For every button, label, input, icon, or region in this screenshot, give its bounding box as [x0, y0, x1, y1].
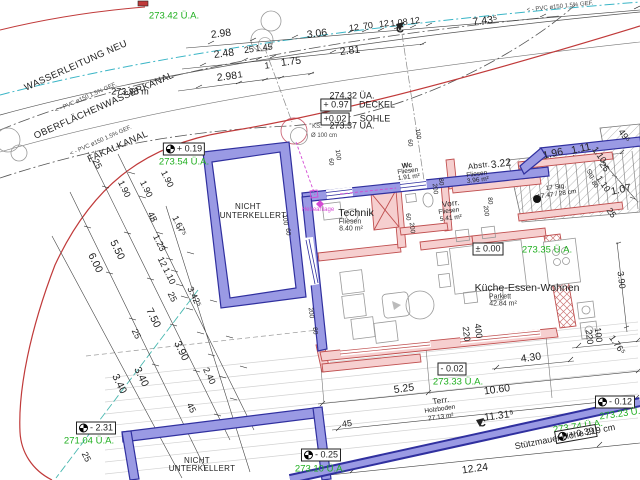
dim-1b: 1 [264, 61, 270, 71]
win-dim-80d-text: 80 [311, 327, 319, 335]
dim-190a: 1.90 [159, 169, 175, 189]
win-dim-60b: 60 [326, 158, 333, 166]
dim-25a-text: 25 [243, 44, 254, 55]
door-dim-80b-text: 80 [486, 197, 494, 205]
level-box-m231: - 2.31 [76, 422, 116, 435]
dim-1060-text: 10.60 [483, 382, 511, 398]
level-box-097-text: + 0.97 [323, 101, 348, 110]
dim-743: 7.43⁵ [472, 14, 498, 27]
win-dim-100b: 100 [333, 149, 341, 161]
level-27338-text: 273.38 m [111, 87, 149, 97]
dim-390a-text: 3.90 [171, 339, 191, 363]
room-technik-area-text: 8.40 m² [339, 226, 363, 233]
dim-100a: 100 [593, 327, 604, 343]
level-27342-text: 273.42 Ü.A. [149, 10, 199, 21]
dim-111: 1.11 [570, 142, 591, 156]
room-kueche-text: Küche-Essen-Wohnen [475, 282, 580, 294]
room-technik: Technik [338, 208, 374, 219]
level-box-m012-text: - 0.12 [609, 398, 632, 407]
dim-25e-text: 25 [80, 450, 93, 463]
stair-rise-run: 17.47 / 28 cm [537, 189, 577, 201]
stair-rise-run-text: 17.47 / 28 cm [537, 188, 577, 200]
dim-45b: 45 [185, 402, 197, 415]
dim-750: 7.50 [144, 307, 162, 330]
level-27333-text: 273.33 Ü.A. [433, 376, 483, 387]
pvc-note-3: < - PVC ø150 1.5% GEF. [526, 1, 593, 14]
ks-diameter: Ø 100 cm [311, 133, 337, 139]
room-abstr-area: 3.96 m² [467, 176, 490, 185]
dim-322: 3.22 [490, 157, 512, 170]
room-wc-area-text: 1.91 m² [398, 172, 421, 182]
dim-70: 70 [362, 21, 373, 31]
dim-298a: 2.98 [210, 28, 232, 41]
level-box-m231-text: - 2.31 [90, 424, 113, 433]
dim-390a: 3.90 [172, 340, 190, 363]
room-kueche-area-text: 42.84 m² [489, 301, 517, 308]
level-box-000-text: ± 0.00 [476, 245, 501, 254]
dim-190c-text: 1.90 [116, 179, 133, 199]
dim-340b: 3.40 [110, 373, 128, 396]
section-marker-c1: C [396, 25, 404, 36]
level-27104-text: 271.04 Ü.A. [64, 435, 114, 446]
dim-25c-text: 25 [166, 290, 179, 303]
dim-196-text: 1.96 [542, 146, 564, 162]
win-dim-100d: 100 [280, 214, 288, 226]
deckel-label-text: DECKEL [359, 100, 395, 110]
survey-marker-icon [598, 398, 607, 407]
dim-45b-text: 45 [185, 401, 198, 414]
room-technik-text: Technik [338, 207, 374, 219]
level-27310-text: 273.10 Ü.A. [295, 463, 345, 474]
dim-110a: 1.10 [161, 266, 177, 286]
dim-25d-text: 25 [130, 327, 143, 340]
level-27338: 273.38 m [111, 88, 149, 97]
door-dim-60a-text: 60 [404, 213, 412, 221]
level-box-m002: - 0.02 [437, 363, 466, 376]
room-technik-area: 8.40 m² [339, 226, 363, 233]
survey-marker-icon [79, 424, 88, 433]
door-dim-60a: 60 [403, 213, 410, 221]
dim-281-text: 2.81 [339, 44, 361, 58]
dim-107: 1.07 [610, 183, 632, 198]
dim-190a-text: 1.90 [159, 169, 176, 189]
dim-525-text: 5.25 [393, 381, 415, 396]
dim-190b: 1.90 [138, 179, 154, 199]
room-nicht-2b: UNTERKELLERT [169, 465, 236, 473]
win-dim-100d-text: 100 [281, 214, 289, 226]
hebeanlage-label-text: Hebeanlage [302, 207, 334, 213]
dim-281: 2.81 [339, 45, 361, 58]
room-technik-floor-text: Fliesen [339, 219, 362, 226]
dim-145-text: 1.45 [255, 41, 274, 53]
win-dim-200d-text: 200 [307, 307, 315, 319]
dim-298b-text: 2.98 [216, 70, 238, 84]
win-dim-100b-text: 100 [334, 149, 342, 161]
level-box-097: + 0.97 [320, 99, 351, 112]
pvc-note-3-text: < - PVC ø150 1.5% GEF. [526, 1, 593, 14]
dim-1b-text: 1 [264, 60, 270, 71]
dim-25d: 25 [130, 328, 142, 341]
dim-25c: 25 [166, 291, 178, 304]
dim-100a-text: 100 [593, 327, 605, 343]
dim-49: 49⁵ [616, 128, 631, 144]
survey-marker-icon [304, 451, 313, 460]
room-abstr-area-text: 3.96 m² [467, 175, 490, 185]
level-27333: 273.33 Ü.A. [433, 377, 483, 387]
dim-340b-text: 3.40 [109, 372, 129, 396]
dim-390b: 3.90 [615, 271, 626, 289]
room-nicht-1a-text: NICHT [235, 202, 261, 211]
level-27337: 273.37 ÜA. [329, 122, 374, 131]
dim-12b-text: 12 [378, 18, 389, 29]
room-nicht-1b: UNTERKELLERT [220, 212, 287, 220]
dim-600-text: 6.00 [85, 251, 105, 275]
room-kueche: Küche-Essen-Wohnen [475, 283, 580, 294]
win-dim-100c: 100 [413, 128, 421, 140]
win-dim-100c-text: 100 [414, 128, 422, 140]
ks-diameter-text: Ø 100 cm [311, 133, 337, 139]
dim-298b: 2.98 [216, 71, 238, 84]
room-technik-floor: Fliesen [339, 219, 362, 226]
dim-1224: 12.24 [461, 462, 488, 476]
win-dim-60d: 60 [283, 228, 290, 236]
dim-743-text: 7.43⁵ [472, 13, 498, 28]
dim-430: 4.30 [520, 351, 542, 364]
level-27354-text: 273.54 Ü.A. [159, 156, 209, 167]
room-vorr-area: 5.41 m² [440, 214, 463, 223]
dim-45a-text: 45 [146, 210, 159, 223]
door-dim-80b: 80 [485, 197, 492, 205]
room-wc-area: 1.91 m² [398, 173, 421, 182]
dim-110a-text: 1.10 [161, 266, 178, 286]
survey-marker-icon [166, 145, 175, 154]
section-marker-c1-text: C [396, 24, 404, 36]
dim-25a: 25 [243, 45, 254, 55]
dim-25g-text: 25 [604, 206, 618, 220]
dim-220a: 220 [461, 326, 472, 342]
dim-306-text: 3.06 [306, 27, 328, 41]
room-nicht-1b-text: UNTERKELLERT [220, 211, 287, 220]
dim-322-text: 3.22 [490, 156, 512, 171]
dim-175-text: 1.75 [280, 55, 302, 69]
level-27335: 273.35 Ü.A. [522, 245, 572, 255]
level-box-000: ± 0.00 [473, 243, 504, 256]
dim-750-text: 7.50 [143, 306, 163, 330]
dim-12c-text: 12 [409, 15, 420, 26]
dim-12c: 12 [409, 16, 420, 26]
dim-220a-text: 220 [461, 326, 473, 342]
door-dim-200c: 200 [430, 183, 438, 195]
win-dim-60c: 60 [405, 139, 412, 147]
dim-167-text: 1.67⁵ [170, 214, 188, 237]
dim-110c: 1.10 [594, 174, 611, 194]
dim-340a: 3.40 [132, 366, 150, 389]
win-dim-60d-text: 60 [284, 228, 292, 236]
dim-190b-text: 1.90 [138, 179, 155, 199]
room-kueche-floor-text: Parkett [489, 294, 511, 301]
dim-342-text: 3.42⁵ [185, 285, 203, 308]
dim-107-text: 1.07 [610, 182, 632, 198]
dim-45c: 45 [341, 419, 352, 429]
site-plan: WASSERLEITUNG NEU< - PVC ø150 1.5% GEF.O… [0, 0, 640, 480]
ks-label: KS. [312, 124, 322, 130]
dim-248: 2.48 [213, 48, 235, 61]
hebeanlage-label: Hebeanlage [302, 207, 334, 213]
level-box-019: + 0.19 [163, 143, 205, 156]
dim-1224-text: 12.24 [461, 461, 489, 477]
dim-240: 2.40 [201, 366, 217, 386]
level-27354: 273.54 Ü.A. [159, 157, 209, 167]
dim-45a: 45 [146, 211, 158, 224]
dim-1131-text: 11.31⁵ [483, 408, 514, 424]
dim-1a-text: 1 [237, 69, 243, 80]
dim-550-text: 5.50 [107, 238, 127, 262]
dim-12a-text: 12 [348, 22, 359, 33]
dim-400-text: 400 [473, 323, 485, 339]
dim-196: 1.96 [542, 147, 564, 162]
door-dim-80c-text: 80 [437, 178, 445, 186]
dim-340a-text: 3.40 [131, 365, 151, 389]
dim-167: 1.67⁵ [170, 214, 187, 237]
win-dim-200d: 200 [306, 307, 314, 319]
room-terr-area: 27.13 m² [428, 413, 454, 423]
dim-123-text: 1.23 [151, 233, 168, 253]
ks-label-text: KS. [312, 124, 322, 130]
dim-25e: 25 [80, 451, 92, 464]
dim-145: 1.45 [255, 42, 273, 53]
dim-1131: 11.31⁵ [483, 409, 514, 424]
dim-25b: 25 [91, 158, 103, 171]
room-kueche-area: 42.84 m² [489, 301, 517, 308]
level-27310: 273.10 Ü.A. [295, 464, 345, 474]
win-dim-80d: 80 [310, 327, 317, 335]
level-box-m025: - 0.25 [301, 449, 341, 462]
dim-1060: 10.60 [483, 383, 510, 397]
level-27104: 271.04 Ü.A. [64, 436, 114, 446]
dim-123: 1.23 [151, 233, 167, 253]
deckel-label: DECKEL [359, 101, 395, 110]
dim-45c-text: 45 [341, 418, 352, 429]
dim-400: 400 [473, 323, 484, 339]
level-box-019-text: + 0.19 [177, 145, 202, 154]
dim-525: 5.25 [393, 382, 415, 395]
dim-12b: 12 [378, 19, 389, 29]
level-box-m002-text: - 0.02 [440, 365, 463, 374]
dim-176: 1.76⁵ [607, 334, 627, 357]
dim-176-text: 1.76⁵ [607, 333, 627, 356]
dim-298a-text: 2.98 [210, 27, 232, 41]
dim-600: 6.00 [86, 252, 104, 275]
dim-49-text: 49⁵ [616, 127, 632, 144]
dim-248-text: 2.48 [213, 47, 235, 61]
level-27335-text: 273.35 Ü.A. [522, 244, 572, 255]
labels-layer: WASSERLEITUNG NEU< - PVC ø150 1.5% GEF.O… [0, 0, 640, 480]
dim-240-text: 2.40 [201, 366, 218, 386]
win-dim-60c-text: 60 [406, 139, 414, 147]
level-box-m025-text: - 0.25 [315, 451, 338, 460]
dim-1a: 1 [237, 70, 243, 80]
dim-390b-text: 3.90 [615, 271, 627, 290]
dim-306: 3.06 [306, 28, 328, 41]
room-nicht-2b-text: UNTERKELLERT [169, 464, 236, 473]
level-27337-text: 273.37 ÜA. [329, 121, 374, 131]
dim-111-text: 1.11 [570, 141, 592, 157]
door-dim-200c-text: 200 [431, 183, 439, 195]
door-dim-200a: 200 [407, 222, 415, 234]
dim-550: 5.50 [108, 239, 126, 262]
dim-25g: 25 [604, 206, 617, 219]
dim-70-text: 70 [362, 20, 373, 31]
dim-175: 1.75 [280, 56, 302, 69]
dim-342: 3.42⁵ [185, 285, 202, 308]
dim-190c: 1.90 [116, 179, 132, 199]
room-nicht-1a: NICHT [235, 203, 261, 211]
door-dim-200b-text: 200 [482, 205, 490, 217]
dim-12a: 12 [348, 23, 359, 33]
door-dim-200b: 200 [481, 205, 489, 217]
dim-430-text: 4.30 [520, 350, 542, 365]
room-kueche-floor: Parkett [489, 294, 511, 301]
door-dim-200a-text: 200 [408, 222, 416, 234]
room-vorr-area-text: 5.41 m² [440, 213, 463, 223]
level-27342: 273.42 Ü.A. [149, 11, 199, 21]
